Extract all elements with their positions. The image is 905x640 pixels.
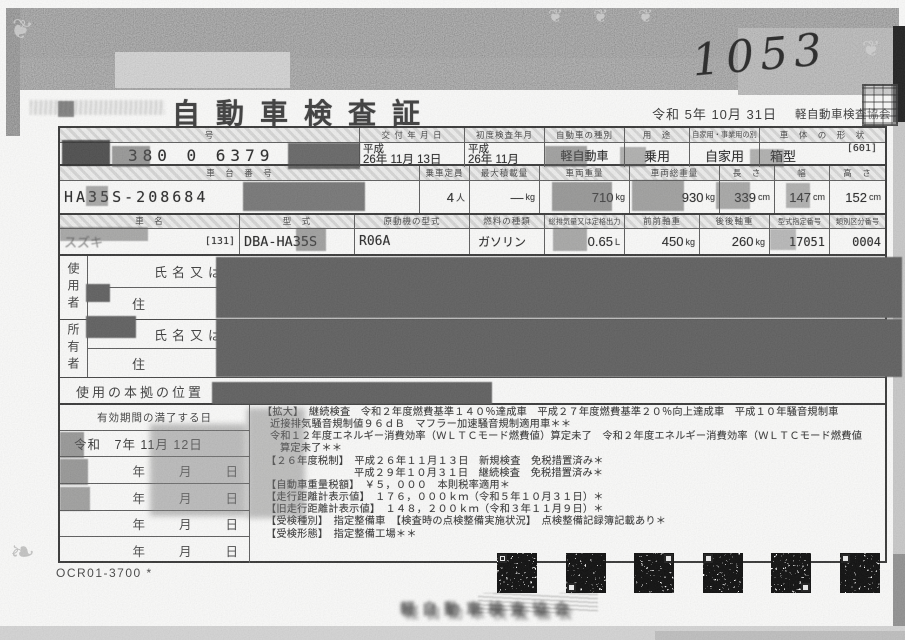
col-class-no-label: 類別区分番号: [830, 215, 885, 228]
scan-smudge: [247, 408, 305, 518]
col-model-label: 型 式: [240, 215, 355, 228]
redaction-user-info: [216, 257, 902, 318]
max-load-value: ―kg: [470, 181, 540, 213]
maker-code: [131]: [205, 236, 235, 247]
col-fuel-label: 燃料の種類: [470, 215, 545, 228]
redaction-blob: [112, 146, 150, 167]
remark-line: 平成２９年１０月３１日 継続検査 免税措置済み＊: [354, 468, 882, 480]
col-weight-label: 車両重量: [540, 166, 630, 180]
user-section-label: 使用者: [60, 256, 88, 319]
faint-serial-smudge: [30, 100, 165, 115]
scan-smudge: [716, 182, 750, 209]
col-displacement-label: 総排気量又は定格出力: [545, 215, 625, 228]
col-first-inspection-label: 初度検査年月: [465, 128, 545, 142]
remark-line: 【旧走行距離計表示値】 １４８，２００ｋｍ（令和３年１１月９日）＊: [266, 504, 882, 516]
redaction-blob: [86, 316, 136, 338]
fuel-value: ガソリン: [470, 229, 545, 254]
qr-code: [703, 553, 743, 593]
scan-smudge: [553, 228, 587, 251]
scan-smudge: [60, 227, 148, 241]
validity-date-5: 年 月 日: [60, 537, 250, 563]
col-max-load-label: 最大積載量: [470, 166, 540, 180]
scan-smudge: [770, 229, 796, 250]
col-rear-axle-label: 後後軸重: [700, 215, 770, 228]
issuer-seal-stamp: [862, 84, 898, 126]
redaction-blob: [58, 101, 74, 117]
remark-line: 【自動車重量税額】 ￥５，０００ 本則税率適用＊: [266, 480, 882, 492]
scan-smudge: [632, 180, 684, 211]
scan-smudge: [552, 182, 612, 211]
redaction-base-location: [212, 382, 492, 404]
redaction-blob: [86, 284, 110, 302]
remark-line: 【２６年度税制】 平成２６年１１月１３日 新規検査 免税措置済み＊: [266, 456, 882, 468]
owner-section-label: 所有者: [60, 319, 88, 377]
col-kind-label: 自動車の種別: [545, 128, 625, 142]
scan-smudge: [60, 487, 90, 511]
issue-date-value: 平成 26年 11月 13日: [360, 143, 465, 167]
ornament-top-right: ❦: [862, 36, 880, 62]
redaction-owner-info: [216, 319, 902, 377]
scan-smudge: [750, 149, 784, 167]
redaction-blob: [288, 143, 360, 169]
col-height-label: 高 さ: [830, 166, 885, 180]
col-width-label: 幅: [775, 166, 830, 180]
remarks-block: 【拡大】 継続検査 令和２年度燃費基準１４０％達成車 平成２７年度燃費基準２０％…: [262, 407, 882, 541]
qr-code: [634, 553, 674, 593]
ocr-form-code: OCR01-3700 *: [56, 566, 153, 580]
col-gross-weight-label: 車両総重量: [630, 166, 720, 180]
remark-line: 【受検形態】 指定整備工場＊＊: [266, 529, 882, 541]
height-value: 152cm: [830, 181, 885, 213]
col-use-label: 用 途: [625, 128, 690, 142]
col-capacity-label: 乗車定員: [420, 166, 470, 180]
remark-line: 【受検種別】 指定整備車 【検査時の点検整備実施状況】 点検整備記録簿記載あり＊: [266, 516, 882, 528]
qr-code: [497, 553, 537, 593]
document-title: 自動車検査証: [172, 92, 436, 132]
chassis-number: HA35S-208684: [60, 181, 420, 213]
remark-line: 【走行距離計表示値】 １７６，０００ｋｍ（令和５年１０月３１日）＊: [266, 492, 882, 504]
col-body-shape-label: 車 体 の 形 状: [760, 128, 885, 142]
model-row: 車 名 型 式 原動機の型式 燃料の種類 総排気量又は定格出力 前前軸重 後後軸…: [60, 215, 885, 256]
scan-smudge: [786, 183, 810, 208]
scan-smudge: [620, 147, 646, 167]
qr-code: [566, 553, 606, 593]
remark-line: 近接排気騒音規制値９６ｄＢ マフラー加速騒音規制適用車＊＊: [270, 419, 882, 431]
bottom-bleed-stamp: 軽自動車検査協会: [404, 602, 580, 623]
qr-code: [840, 553, 880, 593]
rear-axle-value: 260kg: [700, 229, 770, 254]
chassis-row: 車 台 番 号 乗車定員 最大積載量 車両重量 車両総重量 長 さ 幅 高 さ …: [60, 166, 885, 215]
remark-line: 算定未了＊＊: [280, 443, 882, 455]
ornament-top-center: ❦❦❦: [548, 6, 683, 27]
remark-line: 【拡大】 継続検査 令和２年度燃費基準１４０％達成車 平成２７年度燃費基準２０％…: [262, 407, 882, 419]
scan-smudge: [545, 146, 587, 167]
col-front-axle-label: 前前軸重: [625, 215, 700, 228]
engine-value: R06A: [355, 229, 470, 254]
first-inspection-value: 平成 26年 11月: [465, 143, 545, 167]
col-length-label: 長 さ: [720, 166, 775, 180]
scanned-inspection-certificate: ❦ ❦❦❦ ❦ ❧ 自動車検査証 1053 令和 5年 10月 31日 軽自動車…: [0, 0, 905, 640]
scan-smudge: [60, 432, 84, 458]
col-type-no-label: 型式指定番号: [770, 215, 830, 228]
first-ym: 26年 11月: [468, 155, 519, 166]
remark-line: 令和１２年度エネルギー消費効率（ＷＬＴＣモード燃費値）算定未了 令和２年度エネル…: [270, 431, 882, 443]
scan-smudge: [86, 186, 108, 206]
base-location-label: 使用の本拠の位置: [60, 382, 204, 401]
ornament-bottom-left: ❧: [10, 535, 35, 570]
redaction-blob: [62, 140, 110, 166]
issue-ymd: 26年 11月 13日: [363, 155, 441, 166]
scan-smudge: [60, 459, 88, 485]
class-number: 0004: [830, 229, 885, 254]
qr-code: [771, 553, 811, 593]
capacity-value: 4人: [420, 181, 470, 213]
col-chassis-label: 車 台 番 号: [60, 166, 420, 180]
front-axle-value: 450kg: [625, 229, 700, 254]
form-code: [601]: [847, 143, 877, 154]
redaction-blob: [243, 182, 365, 211]
col-private-label: 自家用・事業用の別: [690, 128, 760, 142]
issue-date: 令和 5年 10月 31日: [652, 104, 777, 123]
scan-smudge: [150, 424, 246, 516]
scan-smudge: [296, 228, 326, 251]
col-engine-label: 原動機の型式: [355, 215, 470, 228]
